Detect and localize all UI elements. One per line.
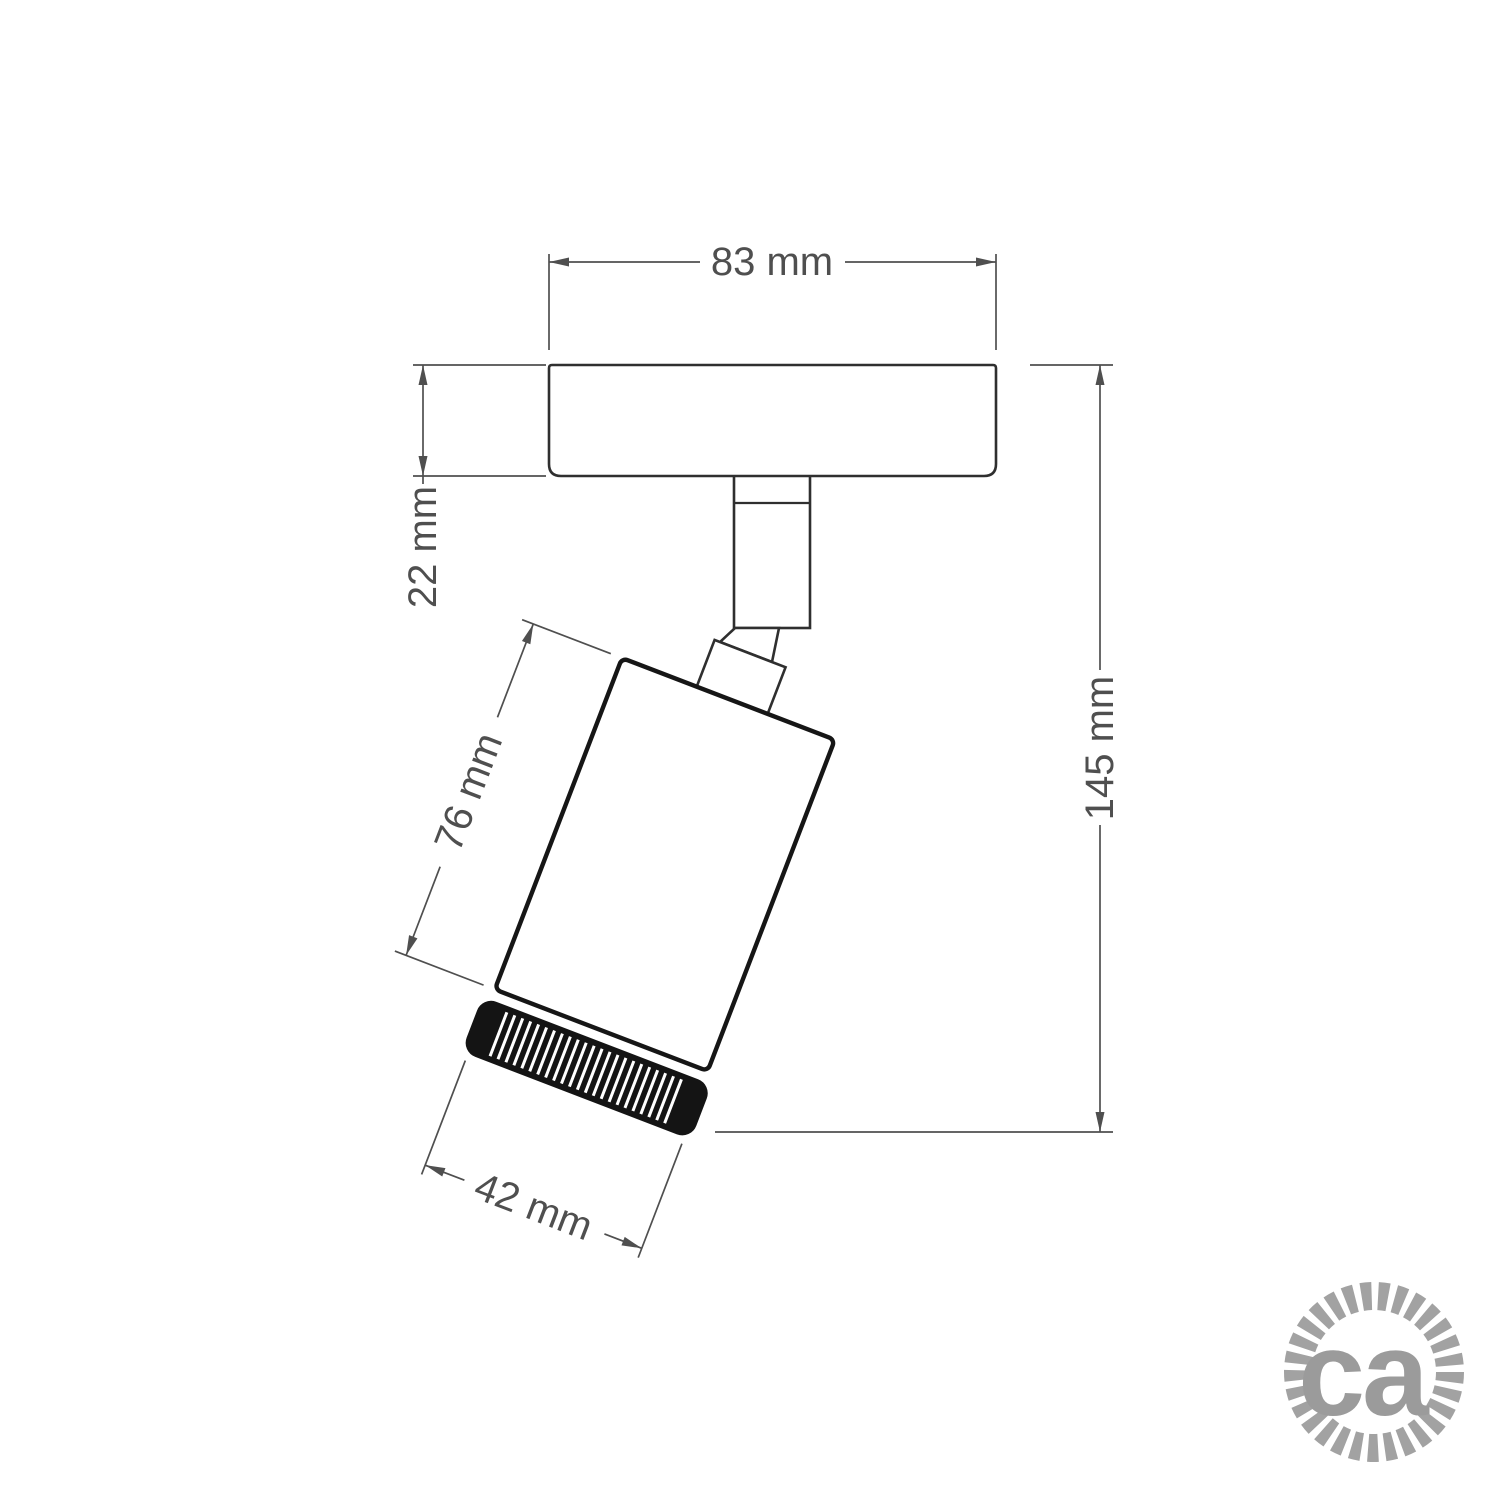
logo-text: ca: [1298, 1307, 1430, 1441]
arrowhead-22-bottom: [419, 456, 428, 476]
spotlight-body: [495, 658, 835, 1071]
ceiling-plate: [549, 365, 996, 476]
arrowhead-76-top: [522, 622, 538, 644]
arrowhead-76-bottom: [402, 935, 418, 957]
ext-line-face-right: [638, 1144, 682, 1258]
arrowhead-42-left: [424, 1161, 446, 1177]
dimension-base-thickness: 22 mm: [401, 365, 546, 608]
dimension-label-body-diameter: 42 mm: [469, 1164, 599, 1249]
arrowhead-145-top: [1096, 365, 1105, 385]
stem-group: [720, 474, 810, 662]
dimension-label-total-height: 145 mm: [1078, 676, 1122, 821]
dimension-label-body-length: 76 mm: [426, 727, 511, 857]
technical-drawing-canvas: 76 mm 42 mm 83 mm: [0, 0, 1500, 1500]
lamp-assembly: 76 mm 42 mm: [310, 569, 860, 1271]
arrowhead-22-top: [419, 365, 428, 385]
dimension-label-base-thickness: 22 mm: [401, 486, 445, 608]
spotlight-dimension-diagram: 76 mm 42 mm 83 mm: [0, 0, 1500, 1500]
arrowhead-83-left: [549, 258, 569, 267]
dimension-base-width: 83 mm: [549, 240, 996, 350]
arrowhead-42-right: [621, 1237, 643, 1253]
dimension-label-base-width: 83 mm: [711, 240, 833, 284]
arrowhead-83-right: [976, 258, 996, 267]
ext-line-body-top: [522, 620, 611, 654]
brand-logo: ca: [1298, 1296, 1450, 1448]
arrowhead-145-bottom: [1096, 1112, 1105, 1132]
stem: [734, 474, 810, 628]
ext-line-body-bottom: [395, 951, 484, 985]
ext-line-face-left: [422, 1061, 466, 1175]
